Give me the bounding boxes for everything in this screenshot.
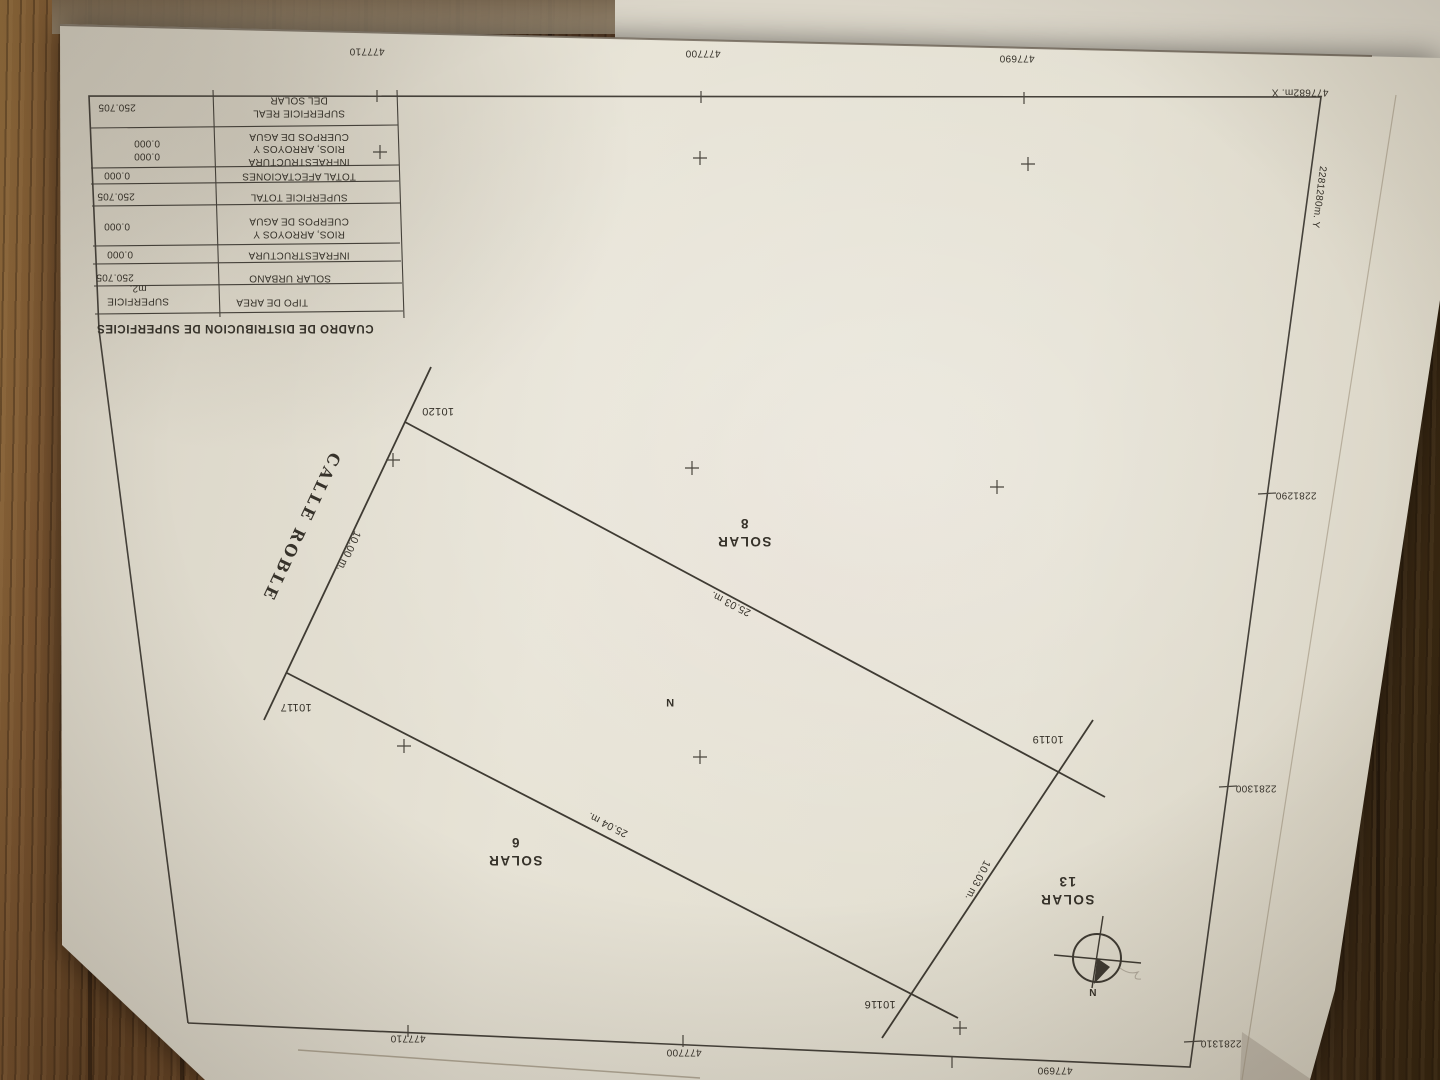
grid-x-bottom-477710: 477710 <box>390 1031 425 1044</box>
surface-table-title: CUADRO DE DISTRIBUCION DE SUPERFICIES <box>96 321 373 335</box>
table-row-superficie-real-value: 250.705 <box>98 100 136 113</box>
table-header-superficie: SUPERFICIE m2. <box>107 282 169 307</box>
table-header-tipo-de-area: TIPO DE AREA <box>236 295 308 308</box>
table-row-rios-label: RIOS, ARROYOS Y CUERPOS DE AGUA <box>249 215 349 240</box>
table-row-superficie-total-value: 250.705 <box>97 189 135 202</box>
table-row-afectaciones-detalle-values: 0.000 0.000 <box>134 137 160 162</box>
grid-x-bottom-477690: 477690 <box>1037 1063 1072 1076</box>
table-row-solar-urbano-label: SOLAR URBANO <box>249 271 331 284</box>
grid-crosses <box>373 145 1035 1035</box>
parcel-label-solar-13: SOLAR 13 <box>1040 872 1095 908</box>
grid-x-bottom-477700: 477700 <box>666 1045 701 1058</box>
table-row-superficie-total-label: SUPERFICIE TOTAL <box>250 190 347 203</box>
survey-point-10117: 10117 <box>280 699 311 713</box>
parcel-center-mark: N <box>666 694 674 708</box>
grid-x-top-477700: 477700 <box>685 46 720 59</box>
survey-point-10116: 10116 <box>864 996 895 1010</box>
compass-rose <box>1054 916 1141 988</box>
table-row-superficie-real-label: SUPERFICIE REAL DEL SOLAR <box>253 94 345 119</box>
paper-crease <box>1242 95 1396 1080</box>
parcel-side-a <box>405 422 1105 797</box>
parcel-side-b <box>287 673 958 1018</box>
photo-stage: SUPERFICIE REAL DEL SOLAR 250.705 INFRAE… <box>0 0 1440 1080</box>
parcel-label-solar-8: SOLAR 8 <box>717 514 772 550</box>
survey-point-10120: 10120 <box>422 403 454 417</box>
grid-y-right-2281310: 2281310 <box>1200 1036 1241 1049</box>
table-row-total-afectaciones-label: TOTAL AFECTACIONES <box>242 169 356 182</box>
grid-x-top-477690: 477690 <box>999 51 1034 64</box>
parcel-label-solar-6: SOLAR 6 <box>488 833 543 869</box>
pencil-scribble <box>1120 968 1141 979</box>
grid-corner-x-label: 477682m. X <box>1272 85 1329 98</box>
grid-y-right-2281300: 2281300 <box>1235 781 1276 794</box>
grid-y-right-2281290: 2281290 <box>1275 488 1316 501</box>
grid-x-top-477710: 477710 <box>349 44 384 57</box>
table-row-total-afectaciones-value: 0.000 <box>104 168 130 181</box>
frame-ticks <box>377 90 1276 1068</box>
parcel-boundaries <box>264 367 1105 1038</box>
compass-north-label: N <box>1089 988 1097 1001</box>
table-row-infraestructura-value: 0.000 <box>107 247 133 260</box>
table-row-solar-urbano-value: 250.705 <box>96 270 134 283</box>
table-row-afectaciones-detalle-label: INFRAESTRUCTURA RIOS, ARROYOS Y CUERPOS … <box>248 129 349 167</box>
survey-point-10119: 10119 <box>1032 731 1063 745</box>
table-row-infraestructura-label: INFRAESTRUCTURA <box>248 248 349 261</box>
under-sheet-edge <box>298 1050 700 1078</box>
table-row-rios-value: 0.000 <box>104 219 130 232</box>
